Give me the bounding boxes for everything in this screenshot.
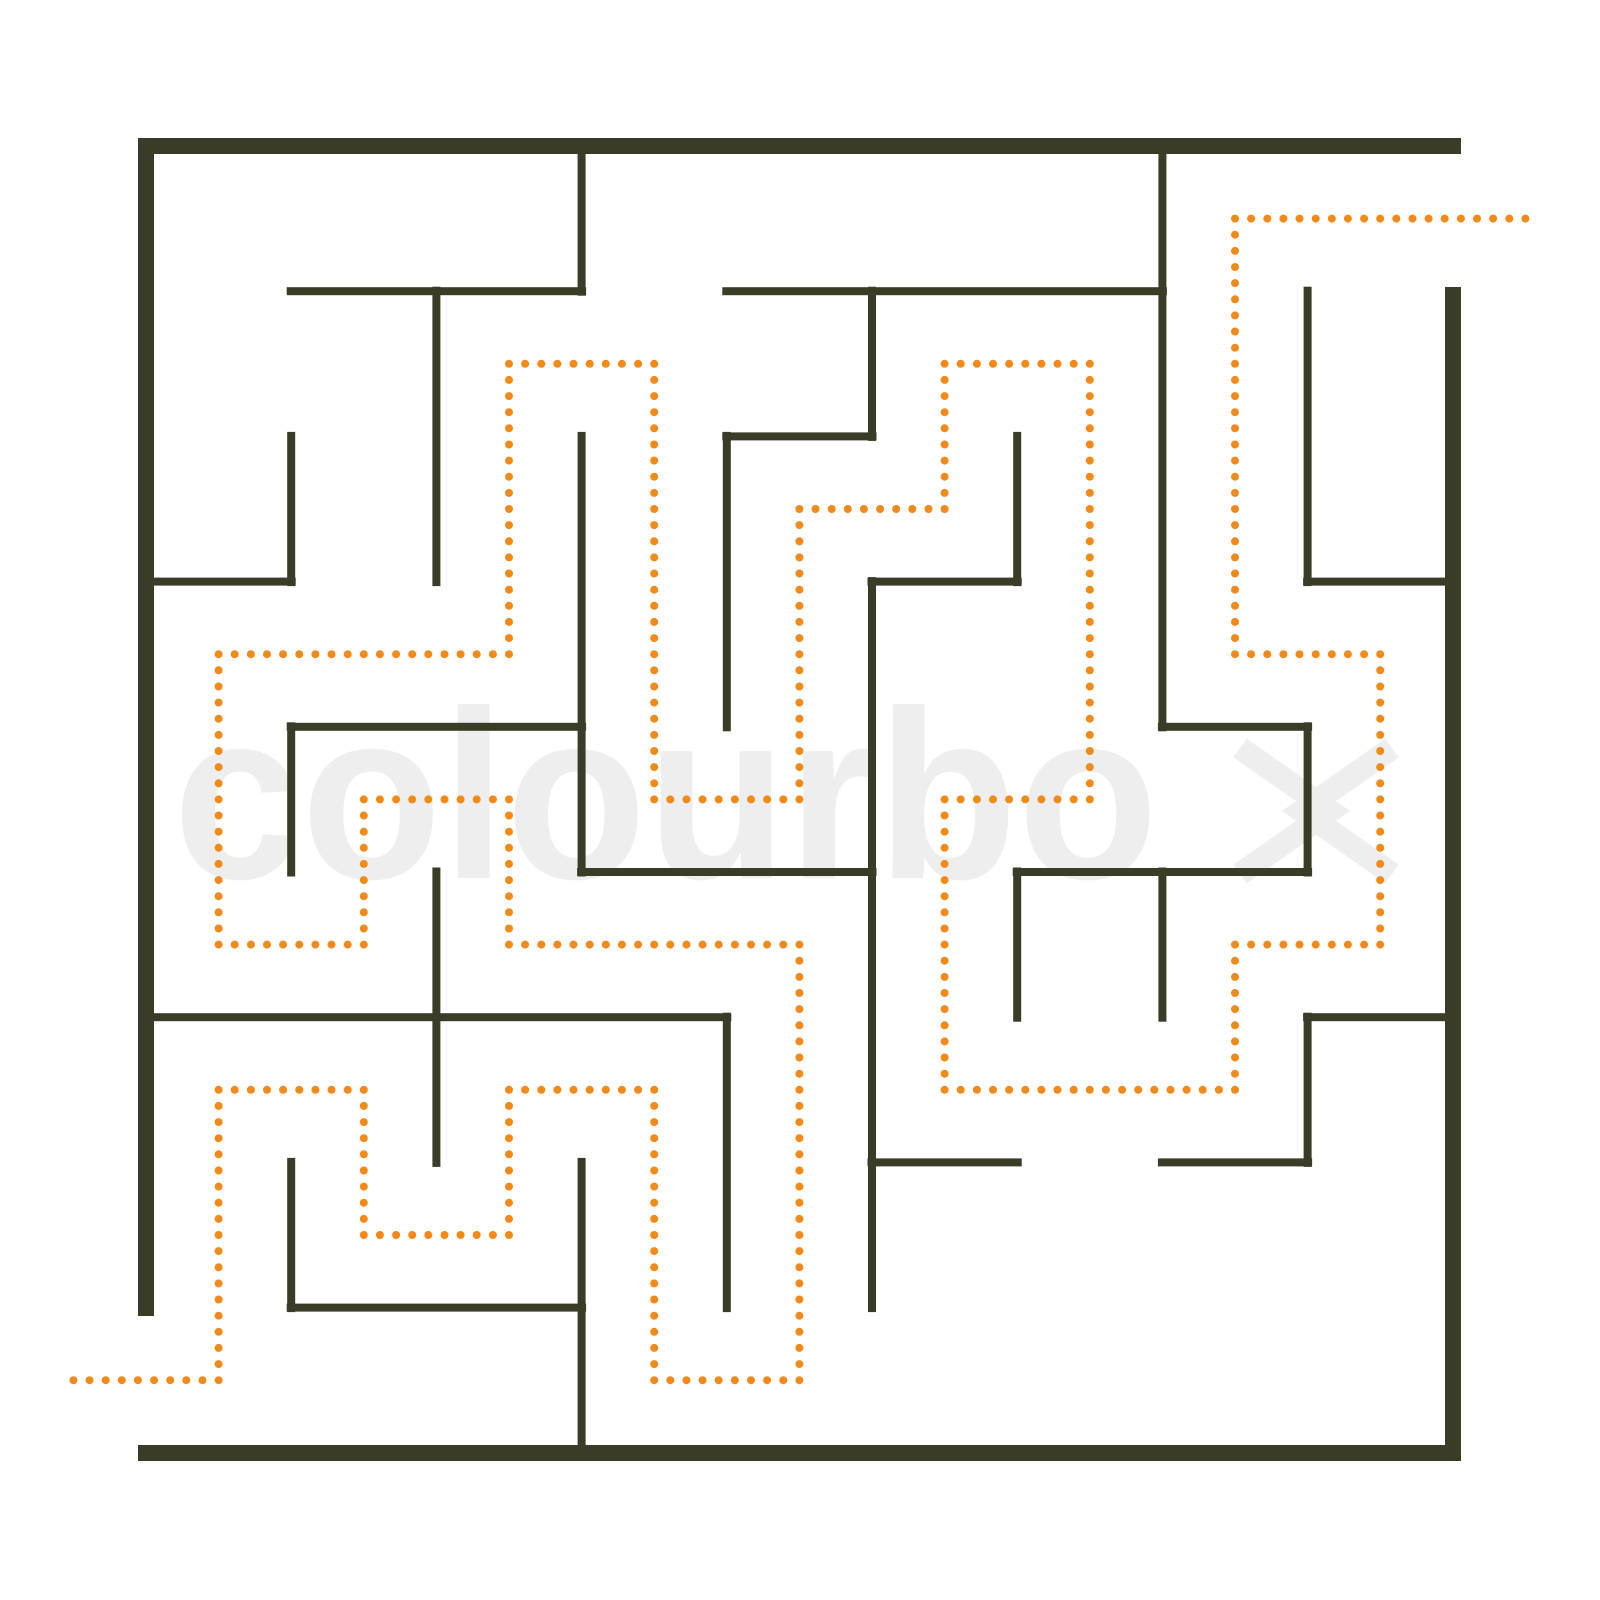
svg-text:colourbo: colourbo (173, 660, 1158, 929)
